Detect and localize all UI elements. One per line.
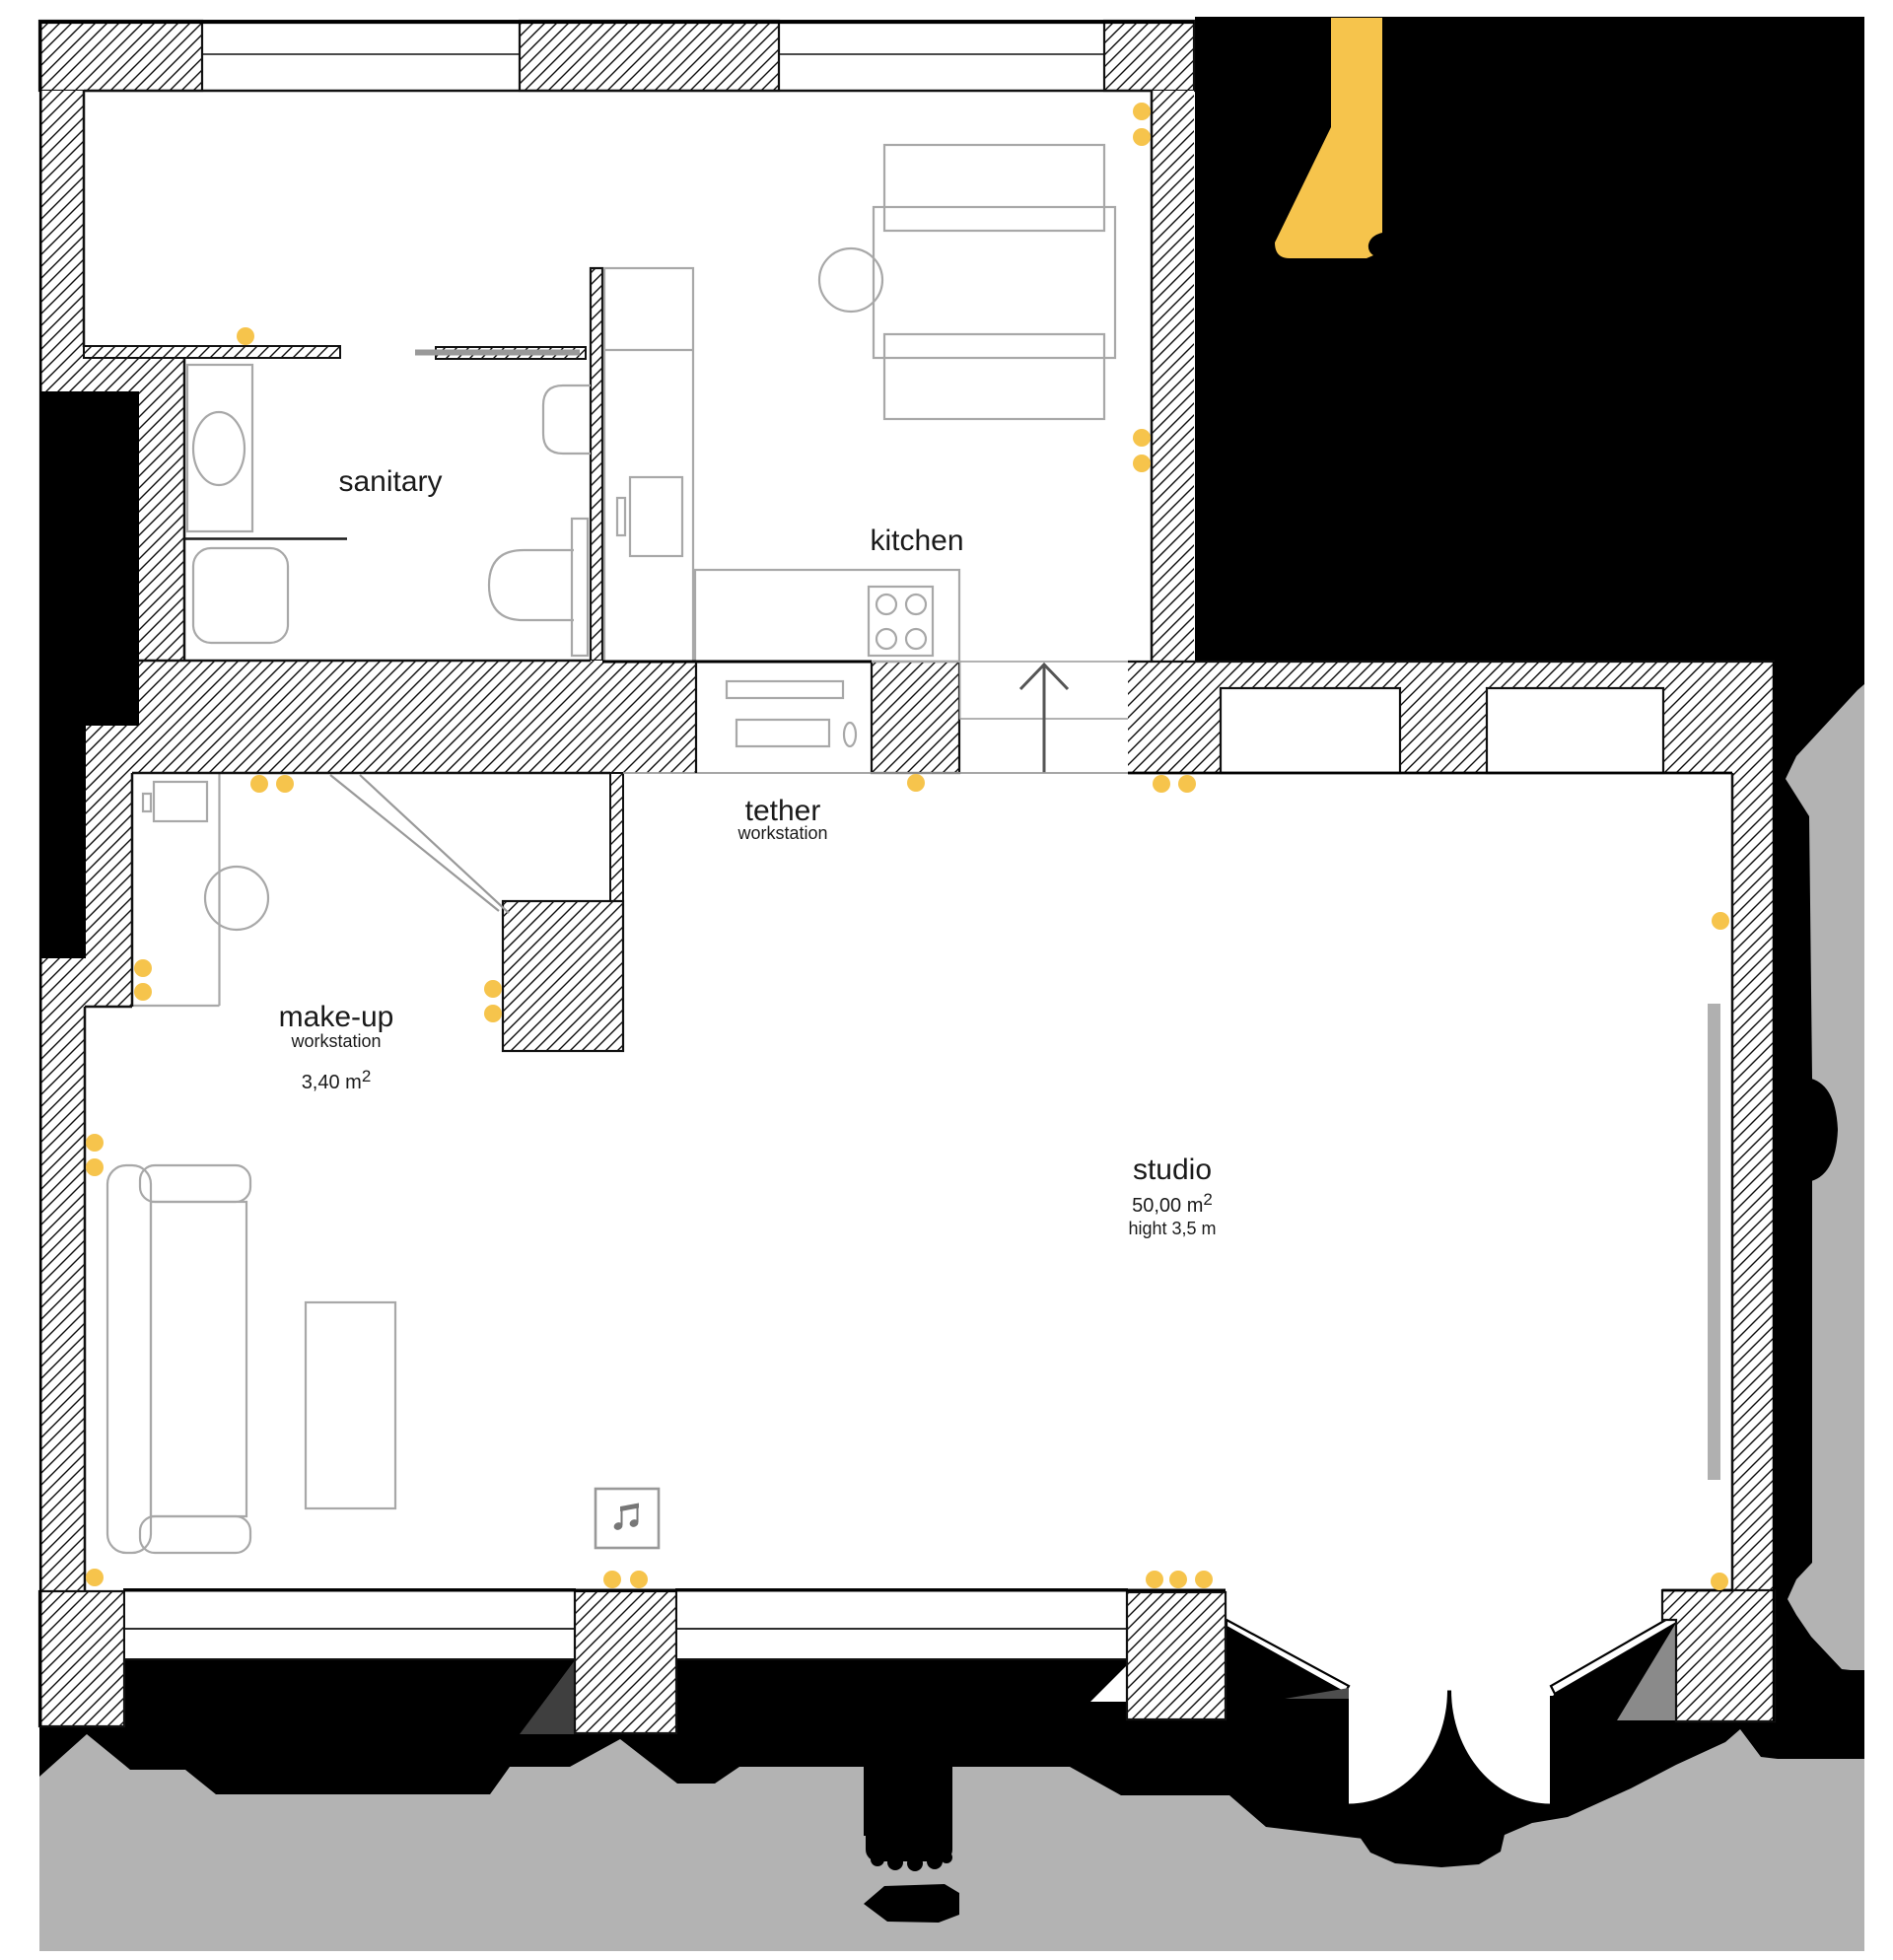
svg-text:sanitary: sanitary: [338, 465, 442, 498]
svg-text:50,00 m2: 50,00 m2: [1132, 1190, 1213, 1217]
svg-text:studio: studio: [1133, 1154, 1212, 1186]
svg-text:workstation: workstation: [290, 1031, 381, 1051]
svg-text:hight 3,5 m: hight 3,5 m: [1128, 1219, 1216, 1238]
svg-text:3,40 m2: 3,40 m2: [302, 1067, 372, 1093]
svg-text:kitchen: kitchen: [870, 525, 963, 557]
svg-text:workstation: workstation: [736, 823, 827, 843]
svg-text:make-up: make-up: [279, 1001, 394, 1033]
